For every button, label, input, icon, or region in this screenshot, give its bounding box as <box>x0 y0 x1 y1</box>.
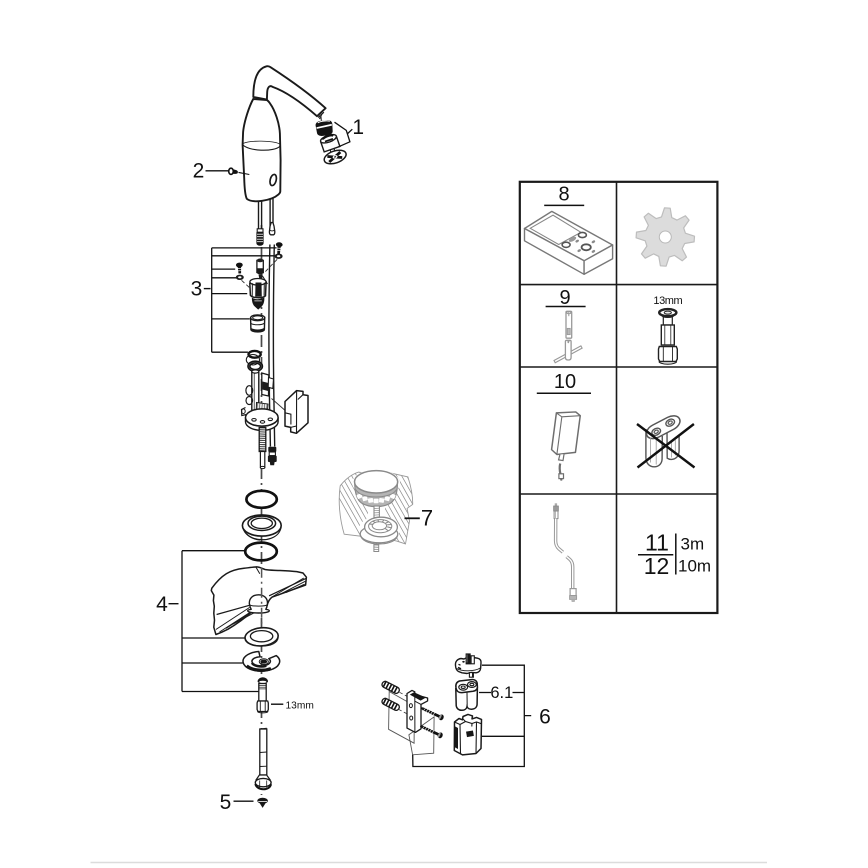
svg-text:3: 3 <box>191 278 203 301</box>
svg-text:1: 1 <box>352 116 364 139</box>
svg-text:6.1: 6.1 <box>490 684 513 702</box>
svg-text:2: 2 <box>193 160 205 183</box>
svg-text:13mm: 13mm <box>286 701 314 712</box>
svg-text:7: 7 <box>421 506 433 531</box>
svg-text:11: 11 <box>645 530 669 556</box>
svg-text:10: 10 <box>554 371 576 393</box>
svg-text:12: 12 <box>644 553 670 579</box>
svg-text:9: 9 <box>559 287 570 309</box>
svg-text:13mm: 13mm <box>653 295 682 307</box>
svg-text:10m: 10m <box>678 557 711 576</box>
svg-text:6: 6 <box>539 706 551 729</box>
svg-text:3m: 3m <box>681 535 705 554</box>
svg-text:8: 8 <box>558 184 569 206</box>
svg-text:4: 4 <box>156 593 168 616</box>
svg-text:5: 5 <box>220 791 232 814</box>
